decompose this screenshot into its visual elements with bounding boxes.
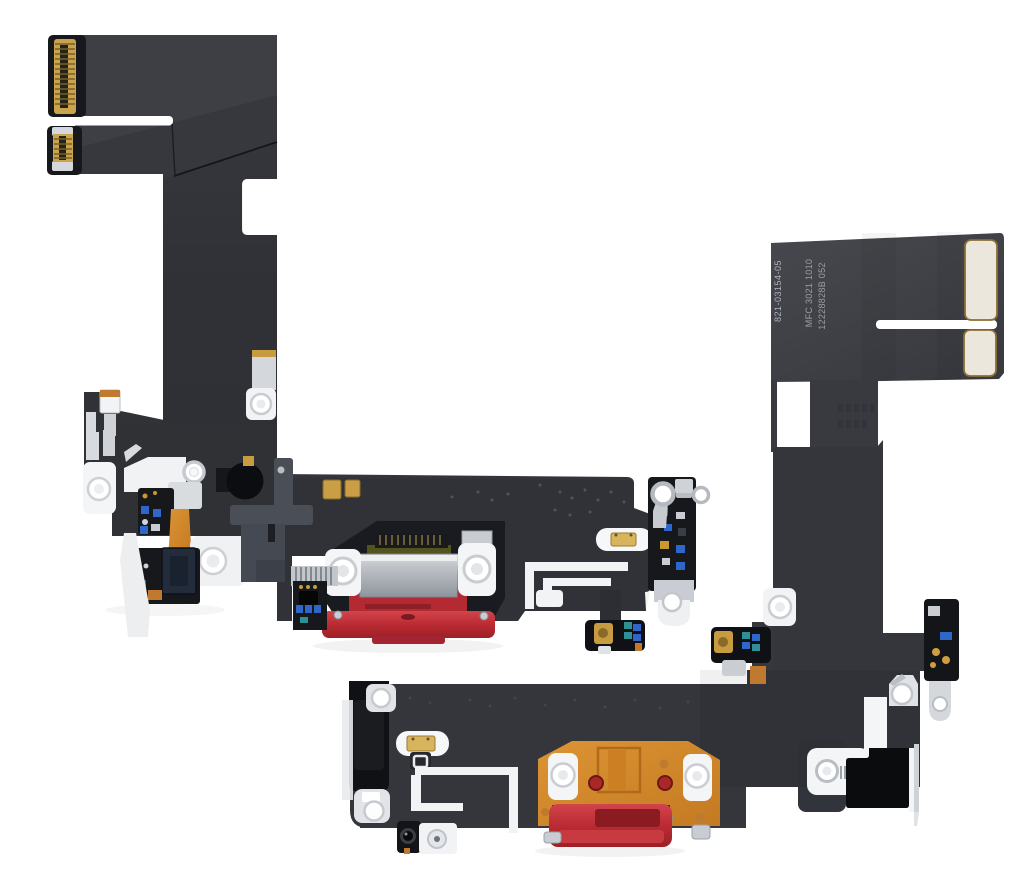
svg-text:12228828B 052: 12228828B 052	[817, 262, 827, 329]
svg-text:821-03154-05: 821-03154-05	[773, 260, 783, 322]
svg-text:MFC 3021 1010: MFC 3021 1010	[804, 259, 814, 327]
